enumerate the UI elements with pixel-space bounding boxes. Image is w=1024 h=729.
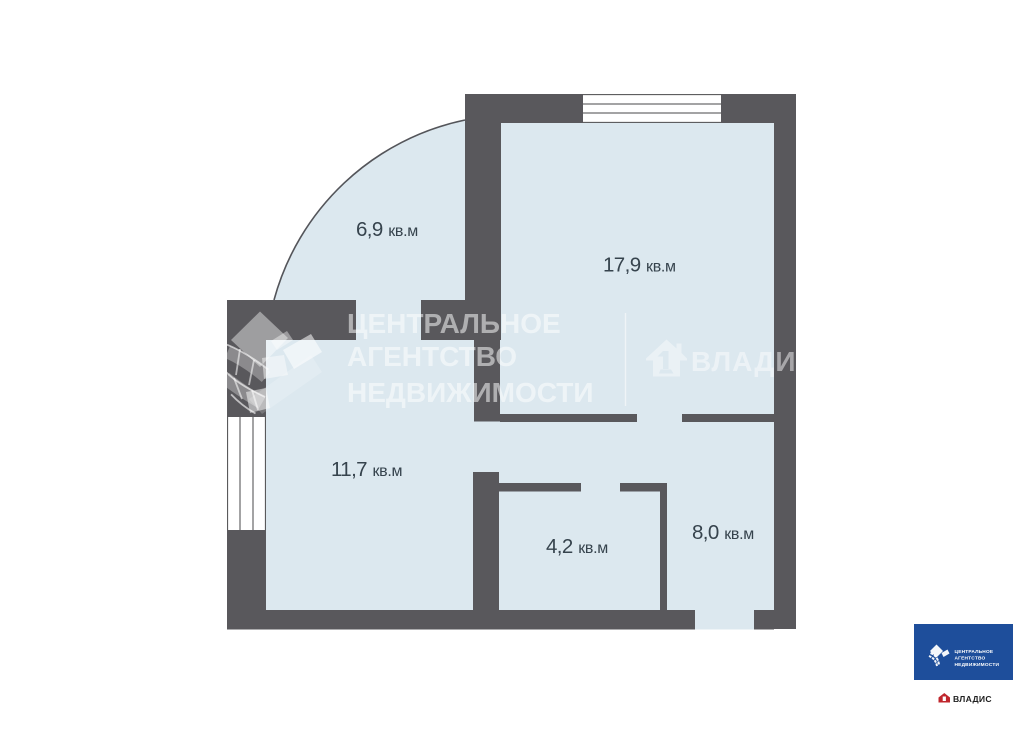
svg-text:ЦЕНТРАЛЬНОЕ: ЦЕНТРАЛЬНОЕ: [347, 308, 561, 339]
svg-text:ВЛАДИС: ВЛАДИС: [953, 694, 992, 704]
svg-text:ЦЕНТРАЛЬНОЕ: ЦЕНТРАЛЬНОЕ: [955, 649, 994, 655]
svg-text:АГЕНТСТВО: АГЕНТСТВО: [955, 656, 986, 662]
svg-text:НЕДВИЖИМОСТИ: НЕДВИЖИМОСТИ: [955, 662, 1000, 668]
svg-text:АГЕНТСТВО: АГЕНТСТВО: [347, 341, 517, 372]
svg-text:НЕДВИЖИМОСТИ: НЕДВИЖИМОСТИ: [347, 377, 593, 408]
svg-text:ВЛАДИС: ВЛАДИС: [691, 346, 818, 377]
